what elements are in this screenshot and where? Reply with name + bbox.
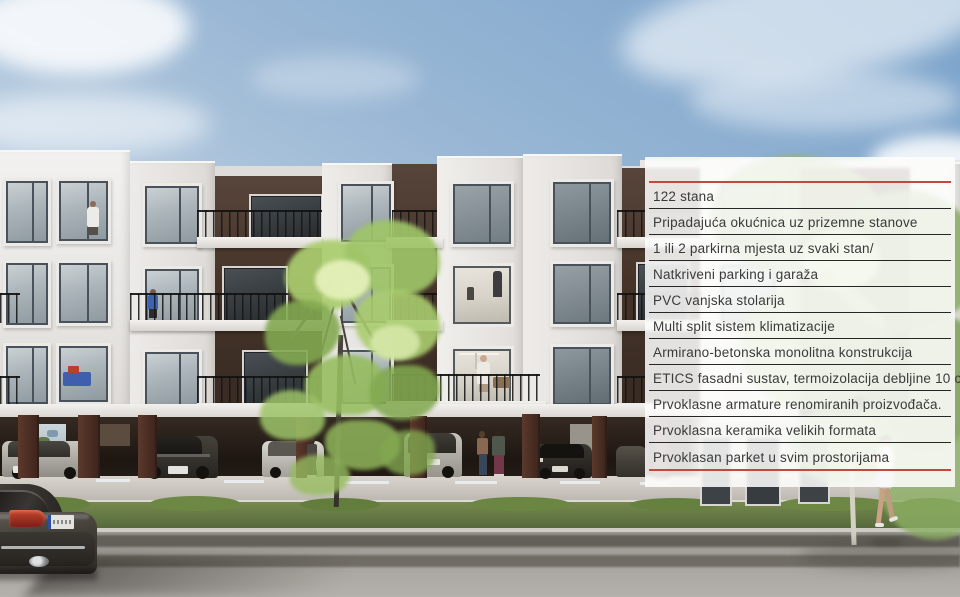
window: [56, 178, 111, 244]
balcony-railing: [0, 376, 20, 406]
parking-marking: [560, 481, 600, 484]
tail-light: [9, 510, 45, 527]
feature-panel: 122 stana Pripadajuća okućnica uz prizem…: [645, 157, 955, 487]
window-interior: [450, 263, 514, 327]
center-tree: [230, 205, 450, 515]
feature-item: ETICS fasadni sustav, termoizolacija deb…: [649, 365, 951, 391]
parked-car: [534, 444, 592, 478]
window: [56, 260, 111, 326]
garage-pillar: [18, 415, 39, 478]
feature-item: Multi split sistem klimatizacije: [649, 313, 951, 339]
feature-item: Armirano-betonska monolitna konstrukcija: [649, 339, 951, 365]
bush: [150, 496, 240, 511]
window: [142, 349, 202, 409]
red-divider-bottom: [649, 469, 951, 471]
feature-item: 1 ili 2 parkirna mjesta uz svaki stan/: [649, 235, 951, 261]
garage-pillar: [522, 414, 540, 478]
bush: [470, 497, 570, 511]
person-in-window: [86, 201, 100, 237]
garage-pillar: [592, 416, 607, 478]
real-estate-render: 122 stana Pripadajuća okućnica uz prizem…: [0, 0, 960, 597]
license-plate: [48, 515, 74, 529]
garage-pillar: [138, 415, 157, 478]
feature-item: 122 stana: [649, 183, 951, 209]
window: [550, 261, 614, 327]
balcony-railing: [0, 293, 20, 323]
feature-item: Natkriveni parking i garaža: [649, 261, 951, 287]
parking-marking: [455, 481, 497, 484]
feature-item: Prvoklasne armature renomiranih proizvođ…: [649, 391, 951, 417]
window: [450, 181, 514, 247]
chrome-trim: [1, 546, 85, 549]
cloud: [0, 92, 210, 154]
feature-item: PVC vanjska stolarija: [649, 287, 951, 313]
couple-standing: [474, 428, 512, 478]
cloud: [690, 70, 960, 130]
window: [550, 344, 614, 408]
feature-item: Prvoklasna keramika velikih formata: [649, 417, 951, 443]
window: [550, 179, 614, 247]
feature-item: Pripadajuća okućnica uz prizemne stanove: [649, 209, 951, 235]
license-plate: [552, 466, 568, 472]
feature-item: Prvoklasan parket u svim prostorijama: [649, 443, 951, 469]
license-plate: [168, 466, 188, 474]
exhaust-pipe: [29, 556, 49, 567]
cloud: [0, 0, 190, 75]
foreground-car: [0, 480, 105, 597]
parked-car: [616, 446, 648, 477]
garage-pillar: [78, 415, 100, 478]
cloud: [250, 55, 420, 100]
window-kids-room: [56, 343, 111, 405]
window: [3, 178, 51, 246]
window: [142, 183, 202, 247]
parked-car: [2, 441, 90, 477]
